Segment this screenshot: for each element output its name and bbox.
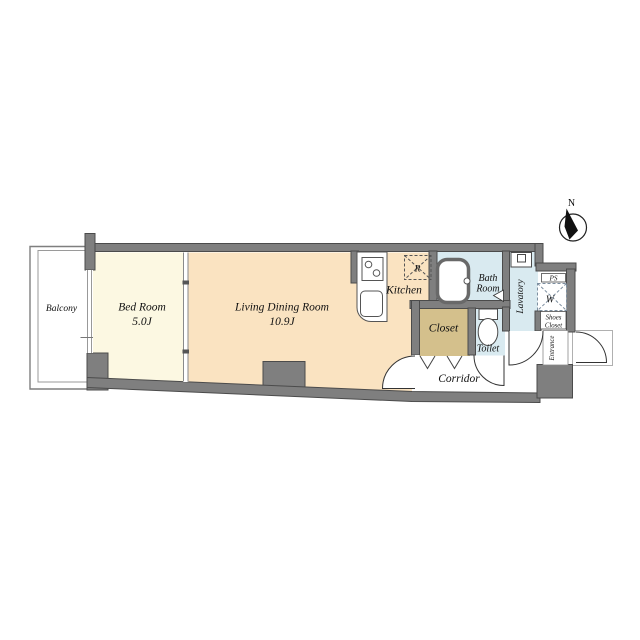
entrance-label: Entrance	[549, 336, 556, 362]
compass-icon: N	[560, 198, 587, 241]
burner-icon	[365, 261, 372, 268]
folding-door	[420, 356, 435, 369]
north-wall	[87, 244, 543, 252]
bedroom-window-icon	[81, 270, 94, 353]
pipe-space-label: PS	[549, 275, 558, 283]
pillar-top-left	[85, 234, 95, 271]
shoes-closet-label-2: Closet	[545, 323, 563, 330]
kitchen-sink-icon	[361, 291, 383, 317]
shoes-closet-wall-stub	[535, 311, 541, 331]
kitchen-counter	[357, 252, 387, 322]
toilet-east-wall	[503, 307, 510, 331]
kitchen-label: Kitchen	[385, 285, 422, 297]
shoes-closet-label-1: Shoes	[546, 315, 562, 322]
closet-door-icon	[420, 356, 462, 369]
partition-tick	[183, 281, 190, 285]
partition-tick	[183, 350, 190, 354]
compass-north-label: N	[568, 198, 575, 209]
lavatory-sink-icon	[511, 253, 532, 268]
bathtub-knob-icon	[464, 278, 470, 284]
balcony-rail-inner	[38, 251, 87, 383]
corridor-label: Corridor	[438, 373, 480, 385]
living-size: 10.9J	[269, 316, 295, 328]
pillar-bottom-right	[537, 365, 573, 399]
east-wall	[567, 269, 576, 332]
balcony-area	[30, 247, 87, 390]
living-label: Living Dining Room	[234, 302, 329, 314]
toilet-tank	[479, 309, 498, 320]
room-partition	[183, 253, 190, 383]
refrigerator-label: R	[414, 265, 421, 275]
stove-icon	[362, 258, 383, 281]
toilet-label: Toilet	[477, 344, 500, 355]
bedroom-label: Bed Room	[118, 302, 166, 314]
burner-icon	[373, 270, 380, 277]
bedroom-size: 5.0J	[132, 316, 152, 328]
lavatory-door-fill	[509, 331, 543, 365]
bath-label-1: Bath	[479, 273, 498, 284]
balcony-label: Balcony	[46, 304, 78, 314]
bath-label-2: Room	[475, 284, 499, 295]
closet-toilet-wall	[468, 308, 476, 355]
toilet-icon	[478, 309, 498, 346]
toilet-bowl	[478, 319, 498, 346]
closet-west-wall	[412, 301, 420, 356]
balcony-rail-outer	[30, 247, 87, 390]
closet-label: Closet	[429, 323, 459, 335]
folding-door	[447, 356, 462, 369]
lavatory-label: Lavatory	[516, 279, 526, 315]
floor-plan-drawing: N Balcony Bed Room 5.0J Living Dining Ro…	[0, 0, 640, 640]
floor-plan-page: N Balcony Bed Room 5.0J Living Dining Ro…	[0, 0, 640, 640]
